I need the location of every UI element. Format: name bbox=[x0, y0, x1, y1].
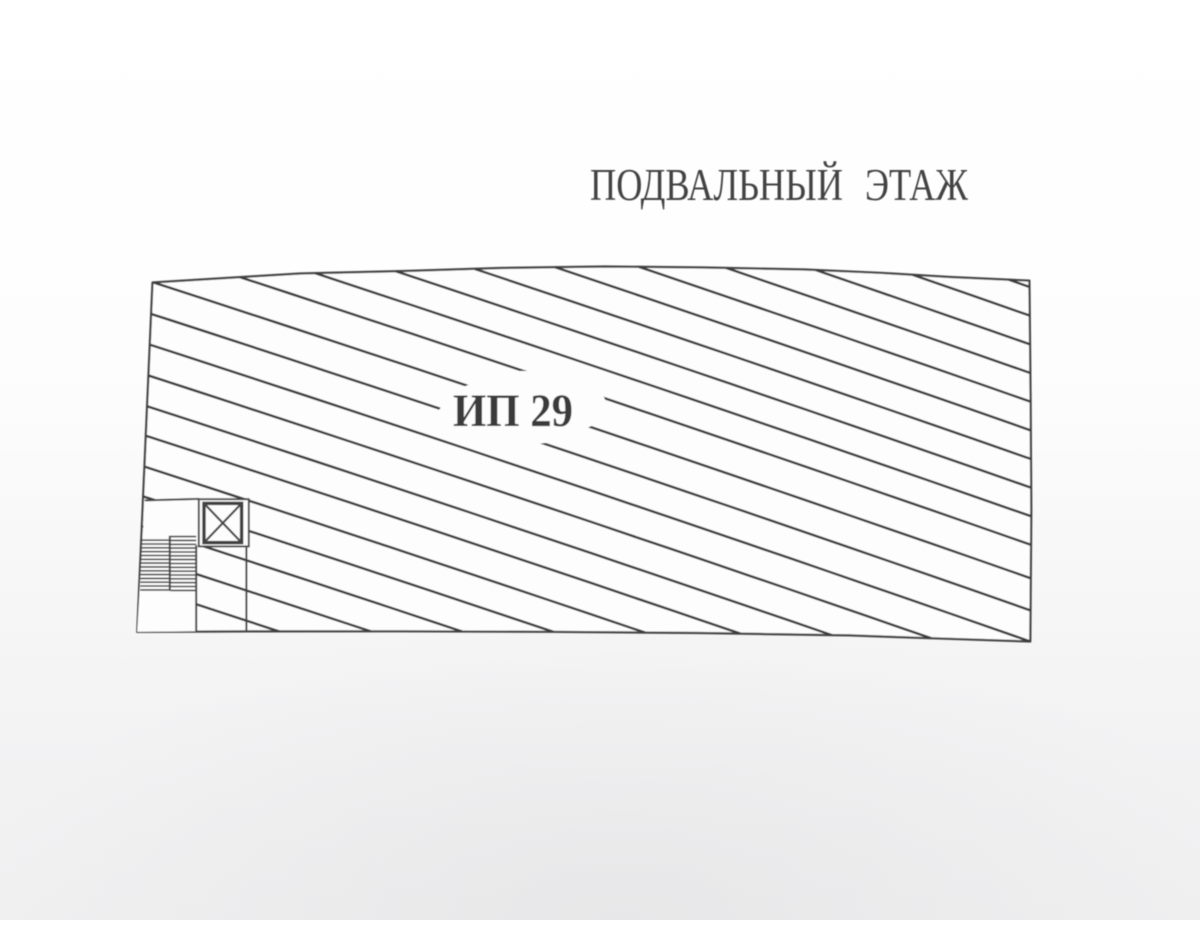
svg-text:ИП 29: ИП 29 bbox=[453, 385, 573, 437]
svg-text:ПОДВАЛЬНЫЙ: ПОДВАЛЬНЫЙ bbox=[590, 160, 843, 210]
svg-text:ЭТАЖ: ЭТАЖ bbox=[865, 160, 969, 210]
